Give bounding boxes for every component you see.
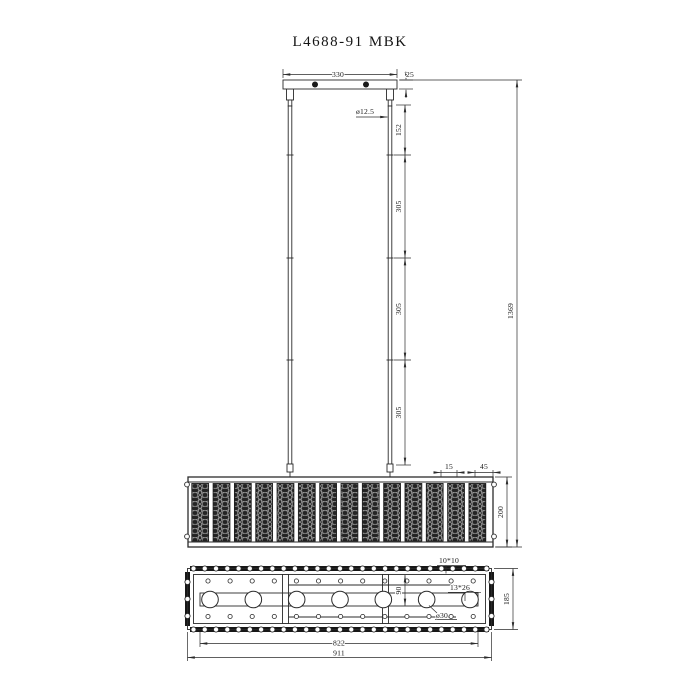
frame-bead	[439, 627, 444, 632]
frame-bead	[428, 627, 433, 632]
lamp-socket	[332, 591, 349, 608]
frame-bead	[236, 627, 241, 632]
crystal-panel	[213, 484, 230, 542]
frame-bead	[461, 627, 466, 632]
dim-text-segment-3: 305	[394, 303, 403, 315]
frame-bead	[281, 566, 286, 571]
dim-text-overall-length: 911	[333, 649, 345, 658]
fixing-hole	[316, 579, 320, 583]
dim-text-arm-profile: 13*26	[450, 583, 470, 592]
fixing-hole	[427, 614, 431, 618]
page-background	[0, 0, 700, 700]
frame-bead	[382, 627, 387, 632]
dim-text-segment-1: 152	[394, 124, 403, 136]
fixing-hole	[250, 579, 254, 583]
lamp-socket	[418, 591, 435, 608]
fixing-hole	[405, 614, 409, 618]
lamp-socket	[462, 591, 479, 608]
body-corner-knob	[185, 482, 190, 487]
frame-bead	[292, 566, 297, 571]
lamp-socket	[288, 591, 305, 608]
dim-text-panel-gap: 15	[445, 462, 453, 471]
frame-bead	[489, 579, 494, 584]
fixing-hole	[316, 614, 320, 618]
crystal-panel	[362, 484, 379, 542]
frame-bead	[349, 627, 354, 632]
dim-text-overall-width: 185	[502, 593, 511, 605]
fixing-hole	[361, 614, 365, 618]
frame-bead	[405, 627, 410, 632]
frame-bead	[213, 627, 218, 632]
frame-bead	[185, 579, 190, 584]
frame-bead	[304, 566, 309, 571]
body-corner-knob	[492, 534, 497, 539]
frame-bead	[202, 566, 207, 571]
fixing-hole	[427, 579, 431, 583]
frame-bead	[281, 627, 286, 632]
dim-text-segment-2: 305	[394, 201, 403, 213]
frame-bead	[247, 627, 252, 632]
frame-bead	[484, 627, 489, 632]
crystal-panel	[405, 484, 422, 542]
frame-bead	[326, 566, 331, 571]
dim-text-canopy-thickness: 25	[406, 70, 414, 79]
fixing-hole	[339, 579, 343, 583]
fixing-hole	[228, 579, 232, 583]
frame-bead	[394, 566, 399, 571]
frame-bead	[394, 627, 399, 632]
crystal-panel	[448, 484, 465, 542]
frame-bead	[270, 566, 275, 571]
frame-bead	[270, 627, 275, 632]
crystal-panel	[192, 484, 209, 542]
fixing-hole	[250, 614, 254, 618]
rod-left-neck	[288, 100, 292, 106]
dim-text-body-height: 200	[496, 506, 505, 518]
frame-bead	[326, 627, 331, 632]
dim-text-socket-diameter: ø30	[436, 611, 448, 620]
frame-bead	[489, 613, 494, 618]
frame-bead	[185, 613, 190, 618]
frame-bead	[473, 566, 478, 571]
frame-bead	[450, 627, 455, 632]
frame-bead	[292, 627, 297, 632]
fixing-hole	[294, 614, 298, 618]
canopy-screw-hole	[312, 82, 318, 88]
drawing-canvas: L4688-91 MBK	[0, 0, 700, 700]
body-corner-knob	[492, 482, 497, 487]
crystal-panel	[320, 484, 337, 542]
frame-bead	[191, 566, 196, 571]
canopy-screw-hole	[363, 82, 369, 88]
fixing-hole	[405, 579, 409, 583]
frame-bead	[473, 627, 478, 632]
frame-bead	[371, 627, 376, 632]
frame-bead	[416, 566, 421, 571]
frame-bead	[213, 566, 218, 571]
frame-bead	[416, 627, 421, 632]
lamp-socket	[202, 591, 219, 608]
frame-bead	[225, 627, 230, 632]
crystal-panel	[298, 484, 315, 542]
frame-bead	[461, 566, 466, 571]
drawing-title: L4688-91 MBK	[292, 34, 407, 50]
frame-bead	[247, 566, 252, 571]
frame-bead	[259, 627, 264, 632]
crystal-panel	[256, 484, 273, 542]
crystal-panel	[384, 484, 401, 542]
fixing-hole	[206, 579, 210, 583]
cross-support-left	[283, 575, 289, 624]
dim-text-bead-size: 10*10	[439, 556, 459, 565]
frame-bead	[337, 566, 342, 571]
frame-bead	[304, 627, 309, 632]
frame-bead	[450, 566, 455, 571]
rod-left-coupler	[287, 89, 294, 100]
dim-text-overall-height: 1369	[506, 303, 515, 319]
rod-right-coupler	[387, 89, 394, 100]
frame-bead	[360, 627, 365, 632]
rod-right-tube	[388, 106, 392, 464]
frame-bead	[315, 627, 320, 632]
lamp-socket	[245, 591, 262, 608]
dim-text-panel-width: 45	[480, 462, 488, 471]
crystal-panel	[277, 484, 294, 542]
dim-text-socket-offset: 90	[394, 587, 403, 595]
fixing-hole	[228, 614, 232, 618]
fixing-hole	[383, 579, 387, 583]
frame-bead	[360, 566, 365, 571]
fixing-hole	[339, 614, 343, 618]
ceiling-canopy	[283, 80, 397, 89]
crystal-panel	[469, 484, 486, 542]
frame-bead	[349, 566, 354, 571]
fixing-hole	[383, 614, 387, 618]
fixing-hole	[449, 614, 453, 618]
dim-text-arm-length: 822	[333, 639, 345, 648]
frame-bead	[337, 627, 342, 632]
frame-bead	[489, 596, 494, 601]
lamp-socket	[375, 591, 392, 608]
fixing-hole	[206, 614, 210, 618]
body-corner-knob	[185, 534, 190, 539]
fixing-hole	[294, 579, 298, 583]
frame-bead	[428, 566, 433, 571]
frame-bead	[382, 566, 387, 571]
frame-bead	[236, 566, 241, 571]
rod-left-end-coupler	[287, 464, 293, 472]
fixing-hole	[272, 579, 276, 583]
rod-right-neck	[388, 100, 392, 106]
rod-left-tube	[288, 106, 292, 464]
crystal-panel	[341, 484, 358, 542]
fixing-hole	[471, 614, 475, 618]
frame-bead	[202, 627, 207, 632]
frame-bead	[185, 596, 190, 601]
fixing-hole	[471, 579, 475, 583]
frame-bead	[225, 566, 230, 571]
frame-bead	[371, 566, 376, 571]
rod-right-end-coupler	[387, 464, 393, 472]
dim-text-segment-4: 305	[394, 407, 403, 419]
frame-bead	[405, 566, 410, 571]
frame-bead	[191, 627, 196, 632]
fixing-hole	[361, 579, 365, 583]
frame-bead	[315, 566, 320, 571]
dim-text-canopy-width: 330	[332, 70, 344, 79]
frame-bead	[439, 566, 444, 571]
crystal-panel	[234, 484, 251, 542]
crystal-panel	[426, 484, 443, 542]
frame-bead	[484, 566, 489, 571]
fixing-hole	[272, 614, 276, 618]
dim-text-rod-diameter: ø12.5	[356, 107, 374, 116]
frame-bead	[259, 566, 264, 571]
